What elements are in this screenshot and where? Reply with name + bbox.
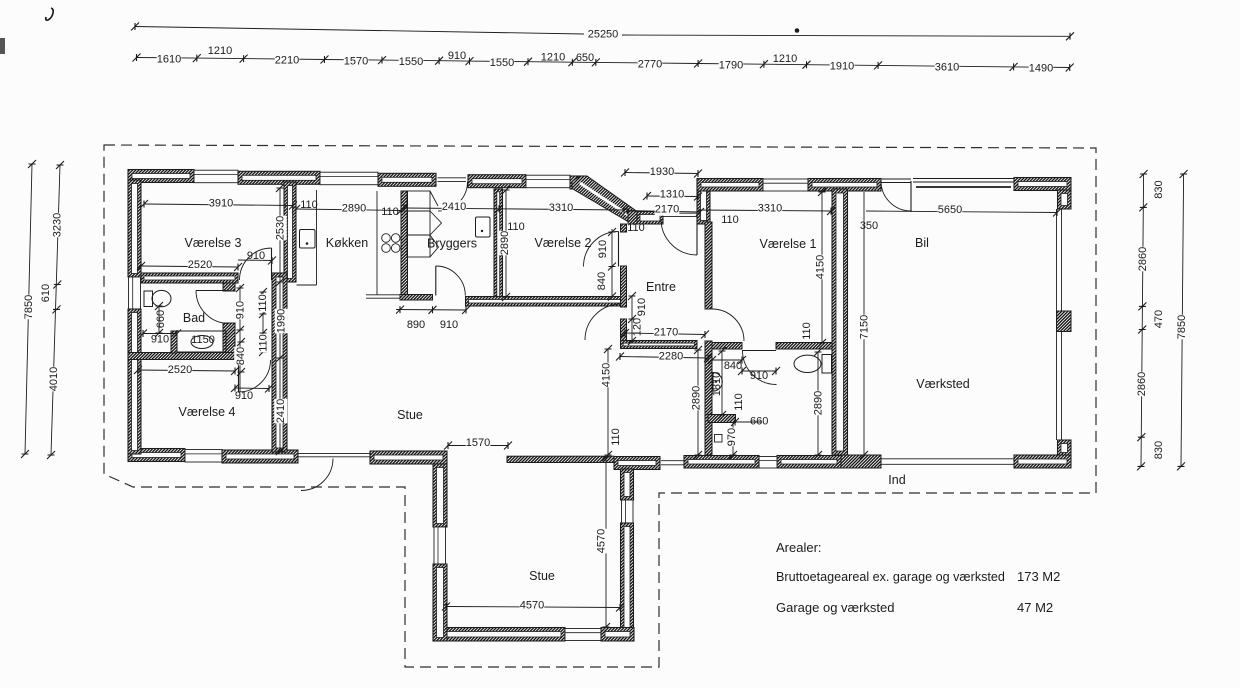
svg-text:Bil: Bil (915, 236, 929, 250)
svg-text:830: 830 (1153, 180, 1165, 198)
svg-text:Køkken: Køkken (326, 236, 368, 250)
svg-text:4570: 4570 (596, 529, 608, 553)
svg-text:350: 350 (860, 220, 878, 232)
svg-text:840: 840 (596, 272, 608, 290)
svg-text:110: 110 (627, 222, 645, 234)
svg-text:Garage og værksted: Garage og værksted (776, 600, 895, 615)
svg-text:830: 830 (1153, 441, 1165, 459)
svg-text:47 M2: 47 M2 (1017, 600, 1053, 615)
svg-text:1990: 1990 (276, 309, 288, 333)
svg-text:1550: 1550 (399, 56, 423, 68)
svg-text:1210: 1210 (773, 53, 797, 65)
svg-text:Arealer:: Arealer: (776, 540, 822, 555)
svg-text:25250: 25250 (588, 29, 619, 41)
svg-text:890: 890 (407, 319, 425, 331)
svg-text:1610: 1610 (157, 53, 181, 65)
svg-text:3230: 3230 (52, 213, 64, 237)
svg-text:2890: 2890 (691, 386, 703, 410)
svg-text:2890: 2890 (499, 231, 511, 255)
svg-text:1570: 1570 (466, 437, 490, 449)
svg-text:910: 910 (235, 301, 247, 319)
svg-text:1150: 1150 (191, 334, 215, 346)
svg-text:Entre: Entre (646, 280, 676, 294)
svg-text:1810: 1810 (711, 372, 723, 396)
svg-text:3310: 3310 (549, 202, 573, 214)
svg-text:2520: 2520 (168, 364, 192, 376)
svg-text:4150: 4150 (601, 363, 613, 387)
svg-text:660: 660 (750, 416, 768, 428)
svg-text:1210: 1210 (208, 45, 232, 57)
svg-text:110: 110 (801, 322, 813, 340)
svg-text:1550: 1550 (490, 57, 514, 69)
svg-text:Ind: Ind (888, 473, 905, 487)
svg-text:Værksted: Værksted (916, 377, 970, 391)
svg-text:910: 910 (247, 250, 265, 262)
svg-text:1790: 1790 (719, 59, 743, 71)
svg-text:660: 660 (155, 310, 167, 328)
svg-text:1930: 1930 (650, 166, 674, 178)
svg-text:Stue: Stue (529, 569, 555, 583)
svg-text:110: 110 (300, 199, 318, 211)
svg-text:1910: 1910 (830, 61, 854, 73)
svg-text:2210: 2210 (275, 55, 299, 67)
svg-text:2890: 2890 (342, 203, 366, 215)
svg-text:4010: 4010 (48, 367, 60, 391)
svg-text:2280: 2280 (659, 351, 683, 363)
svg-text:910: 910 (448, 50, 466, 62)
svg-text:Bruttoetageareal ex. garage og: Bruttoetageareal ex. garage og værksted (776, 570, 1005, 584)
svg-text:4150: 4150 (815, 255, 827, 279)
svg-text:Bad: Bad (183, 311, 205, 325)
svg-text:110: 110 (721, 214, 739, 226)
svg-text:1570: 1570 (344, 55, 368, 67)
svg-text:Værelse 4: Værelse 4 (179, 405, 236, 419)
svg-text:Stue: Stue (397, 408, 423, 422)
svg-text:110: 110 (257, 294, 269, 312)
svg-text:970: 970 (726, 428, 738, 446)
svg-text:2860: 2860 (1137, 247, 1149, 271)
svg-text:2890: 2890 (813, 391, 825, 415)
svg-text:173 M2: 173 M2 (1017, 569, 1060, 584)
svg-text:5650: 5650 (938, 204, 962, 216)
svg-text:1490: 1490 (1029, 63, 1053, 75)
svg-text:3310: 3310 (758, 203, 782, 215)
svg-text:910: 910 (440, 319, 458, 331)
svg-text:2410: 2410 (442, 201, 466, 213)
svg-text:Bryggers: Bryggers (427, 237, 477, 251)
svg-text:910: 910 (235, 390, 253, 402)
svg-text:910: 910 (636, 298, 648, 316)
svg-text:840: 840 (724, 360, 742, 372)
svg-text:2520: 2520 (188, 259, 212, 271)
svg-text:2170: 2170 (654, 327, 678, 339)
svg-text:910: 910 (597, 240, 609, 258)
svg-text:2170: 2170 (655, 204, 679, 216)
svg-text:Værelse 3: Værelse 3 (185, 236, 242, 250)
svg-text:1310: 1310 (660, 189, 684, 201)
svg-text:110: 110 (258, 334, 270, 352)
svg-text:Værelse 1: Værelse 1 (760, 237, 817, 251)
svg-text:7850: 7850 (23, 295, 35, 319)
svg-text:610: 610 (40, 284, 52, 302)
svg-text:910: 910 (151, 334, 169, 346)
svg-text:2530: 2530 (275, 216, 287, 240)
svg-text:2410: 2410 (275, 399, 287, 423)
svg-text:840: 840 (235, 347, 247, 365)
svg-text:470: 470 (1153, 310, 1165, 328)
svg-text:4570: 4570 (520, 600, 544, 612)
svg-text:2770: 2770 (638, 59, 662, 71)
svg-text:110: 110 (381, 206, 399, 218)
svg-text:7850: 7850 (1176, 315, 1188, 339)
svg-text:Værelse 2: Værelse 2 (535, 236, 592, 250)
svg-text:110: 110 (733, 393, 745, 411)
svg-text:3610: 3610 (935, 62, 959, 74)
svg-text:1210: 1210 (541, 52, 565, 64)
svg-text:910: 910 (750, 370, 768, 382)
svg-text:110: 110 (610, 428, 622, 446)
svg-text:2860: 2860 (1136, 372, 1148, 396)
svg-text:650: 650 (576, 52, 594, 64)
svg-text:3910: 3910 (209, 198, 233, 210)
svg-text:7150: 7150 (859, 315, 871, 339)
